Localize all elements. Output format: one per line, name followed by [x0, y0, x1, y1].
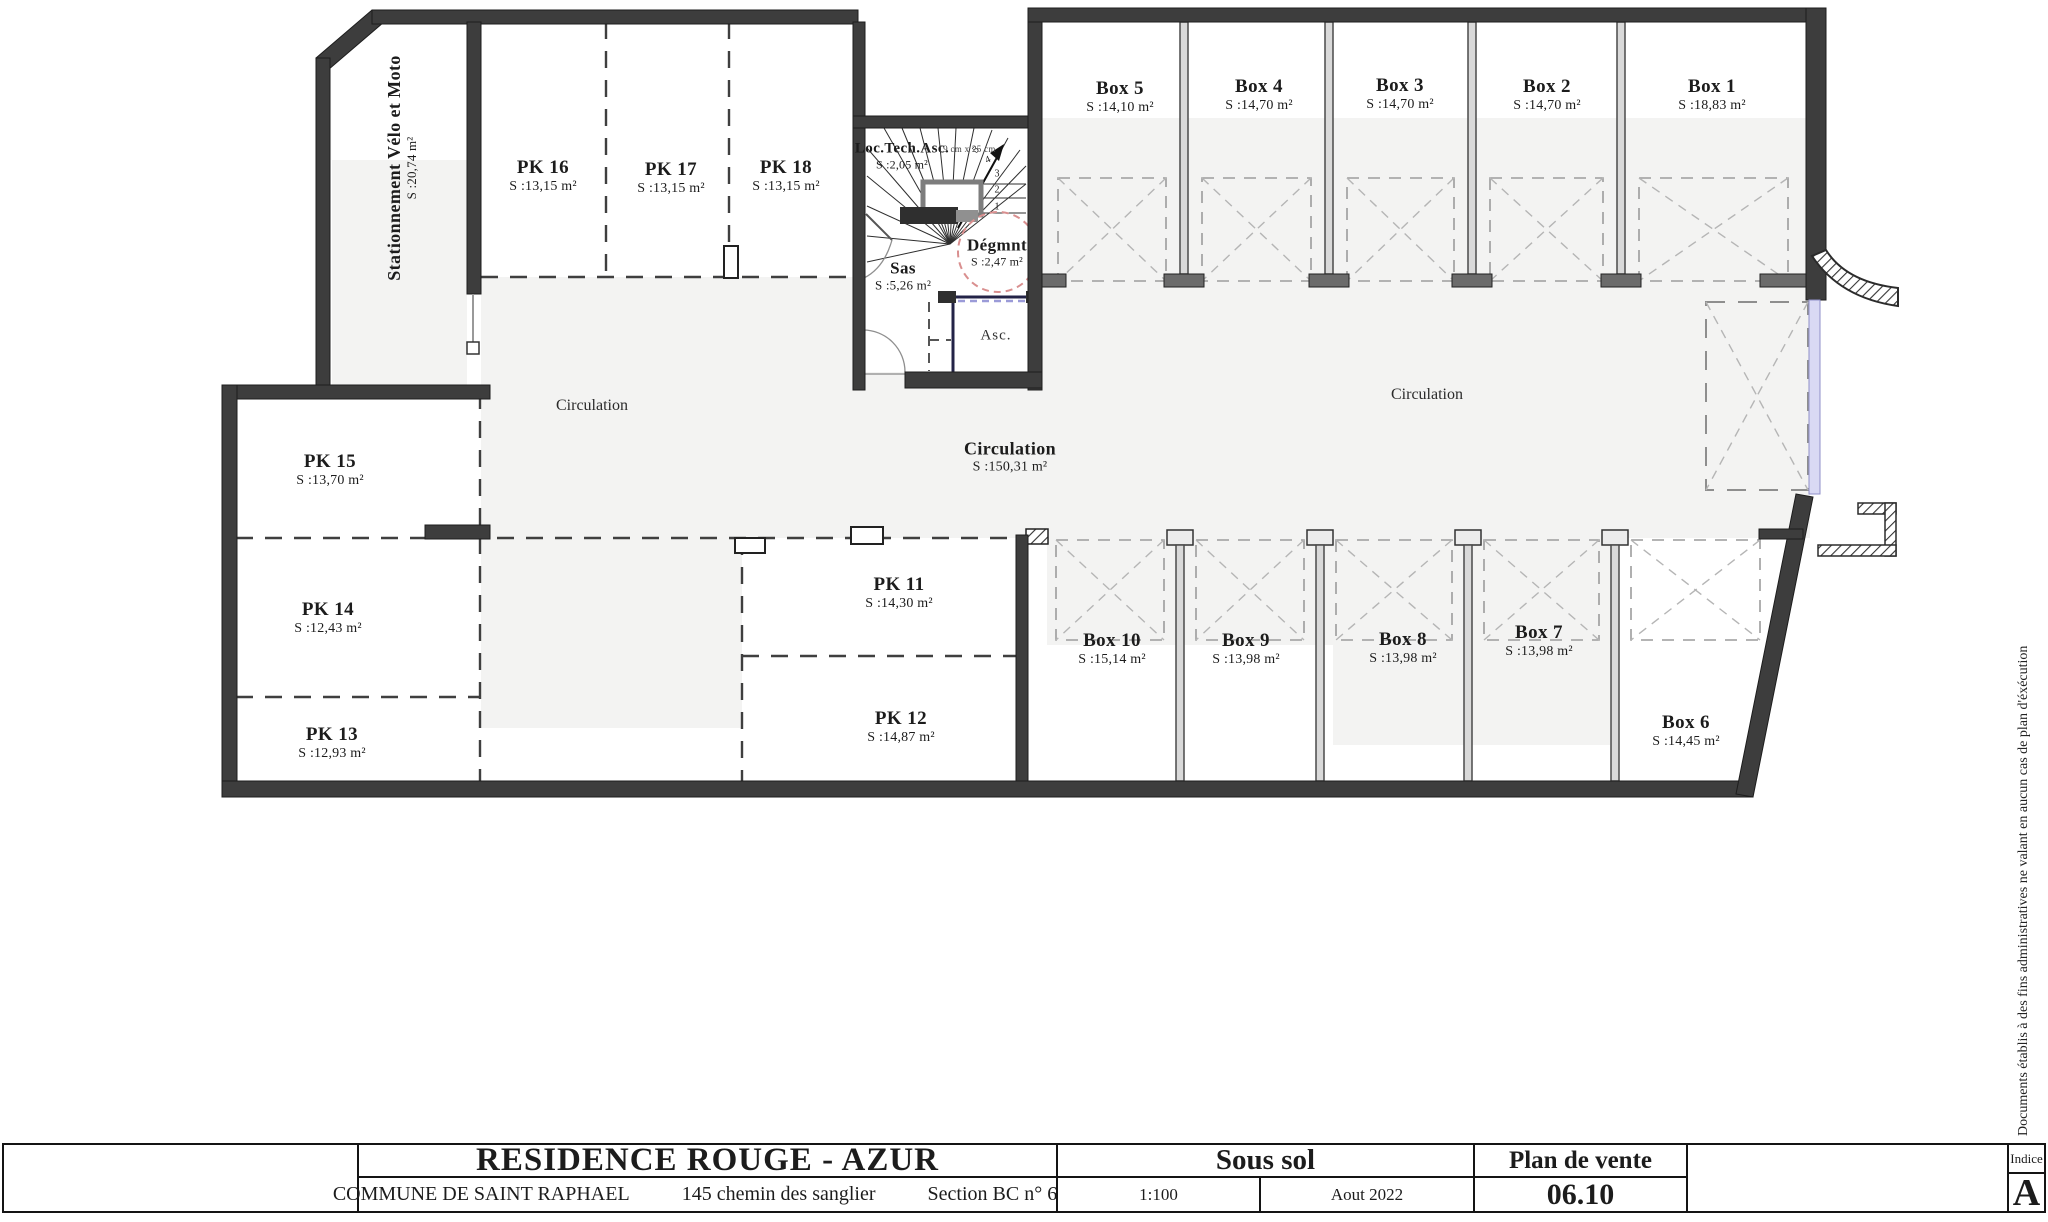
label-circulation-left: Circulation [556, 397, 628, 415]
room-label-asc: Asc. [980, 328, 1011, 345]
stair-tread-number: 3 [995, 169, 1000, 180]
room-label-box8: Box 8 S :13,98 m² [1369, 629, 1436, 667]
commune: COMMUNE DE SAINT RAPHAEL [333, 1183, 630, 1206]
room-label-pk11: PK 11 S :14,30 m² [865, 574, 932, 612]
level-name: Sous sol [1216, 1144, 1315, 1177]
room-label-pk16: PK 16 S :13,15 m² [509, 157, 576, 195]
project-address-cell: COMMUNE DE SAINT RAPHAEL 145 chemin des … [357, 1176, 1058, 1213]
label-circulation-main: Circulation S :150,31 m² [964, 439, 1056, 476]
room-label-pk17: PK 17 S :13,15 m² [637, 159, 704, 197]
room-label-box3: Box 3 S :14,70 m² [1366, 75, 1433, 113]
indice-value-cell: A [2007, 1172, 2046, 1213]
room-label-box7: Box 7 S :13,98 m² [1505, 622, 1572, 660]
scale-cell: 1:100 [1056, 1176, 1261, 1213]
floor-shading [332, 118, 1810, 745]
address: 145 chemin des sanglier [682, 1183, 876, 1206]
administrative-note: Documents établis à des fins administrat… [2016, 690, 2032, 1136]
room-label-box1: Box 1 S :18,83 m² [1678, 76, 1745, 114]
stair-dimension-note: 19 cm x 25 cm [938, 144, 995, 154]
doc-number-cell: 06.10 [1473, 1176, 1688, 1213]
floor-plan-sheet: Stationnement Vélo et Moto S :20,74 m² P… [0, 0, 2048, 1222]
title-block-empty-right [1686, 1143, 2009, 1213]
document-type: Plan de vente [1509, 1147, 1652, 1175]
project-title-cell: RESIDENCE ROUGE - AZUR [357, 1143, 1058, 1178]
drawing-date: Aout 2022 [1331, 1185, 1403, 1205]
room-label-pk14: PK 14 S :12,43 m² [294, 599, 361, 637]
room-label-pk13: PK 13 S :12,93 m² [298, 724, 365, 762]
label-circulation-right: Circulation [1391, 386, 1463, 404]
room-label-pk12: PK 12 S :14,87 m² [867, 708, 934, 746]
room-label-box2: Box 2 S :14,70 m² [1513, 76, 1580, 114]
doc-type-cell: Plan de vente [1473, 1143, 1688, 1178]
indice-value: A [2013, 1171, 2040, 1215]
room-label-box9: Box 9 S :13,98 m² [1212, 630, 1279, 668]
room-label-pk15: PK 15 S :13,70 m² [296, 451, 363, 489]
document-number: 06.10 [1547, 1178, 1615, 1212]
indice-label-cell: Indice [2007, 1143, 2046, 1174]
title-block-empty-left [2, 1143, 359, 1213]
garage-door [1809, 300, 1820, 494]
room-label-sas: Sas S :5,26 m² [875, 259, 931, 294]
stair-tread-number: 2 [995, 185, 1000, 196]
project-title: RESIDENCE ROUGE - AZUR [476, 1142, 939, 1179]
drawing-scale: 1:100 [1139, 1185, 1178, 1205]
level-cell: Sous sol [1056, 1143, 1475, 1178]
room-label-box5: Box 5 S :14,10 m² [1086, 78, 1153, 116]
room-label-box6: Box 6 S :14,45 m² [1652, 712, 1719, 750]
room-label-pk18: PK 18 S :13,15 m² [752, 157, 819, 195]
date-cell: Aout 2022 [1259, 1176, 1475, 1213]
stair-tread-number: 1 [995, 202, 1000, 213]
room-label-box4: Box 4 S :14,70 m² [1225, 76, 1292, 114]
room-label-velo: Stationnement Vélo et Moto S :20,74 m² [384, 55, 420, 281]
room-label-box10: Box 10 S :15,14 m² [1078, 630, 1145, 668]
room-label-loctech: Loc.Tech.Asc. S :2,05 m² [855, 140, 949, 171]
room-label-degmnt: Dégmnt S :2,47 m² [967, 235, 1027, 268]
indice-label: Indice [2010, 1151, 2042, 1167]
